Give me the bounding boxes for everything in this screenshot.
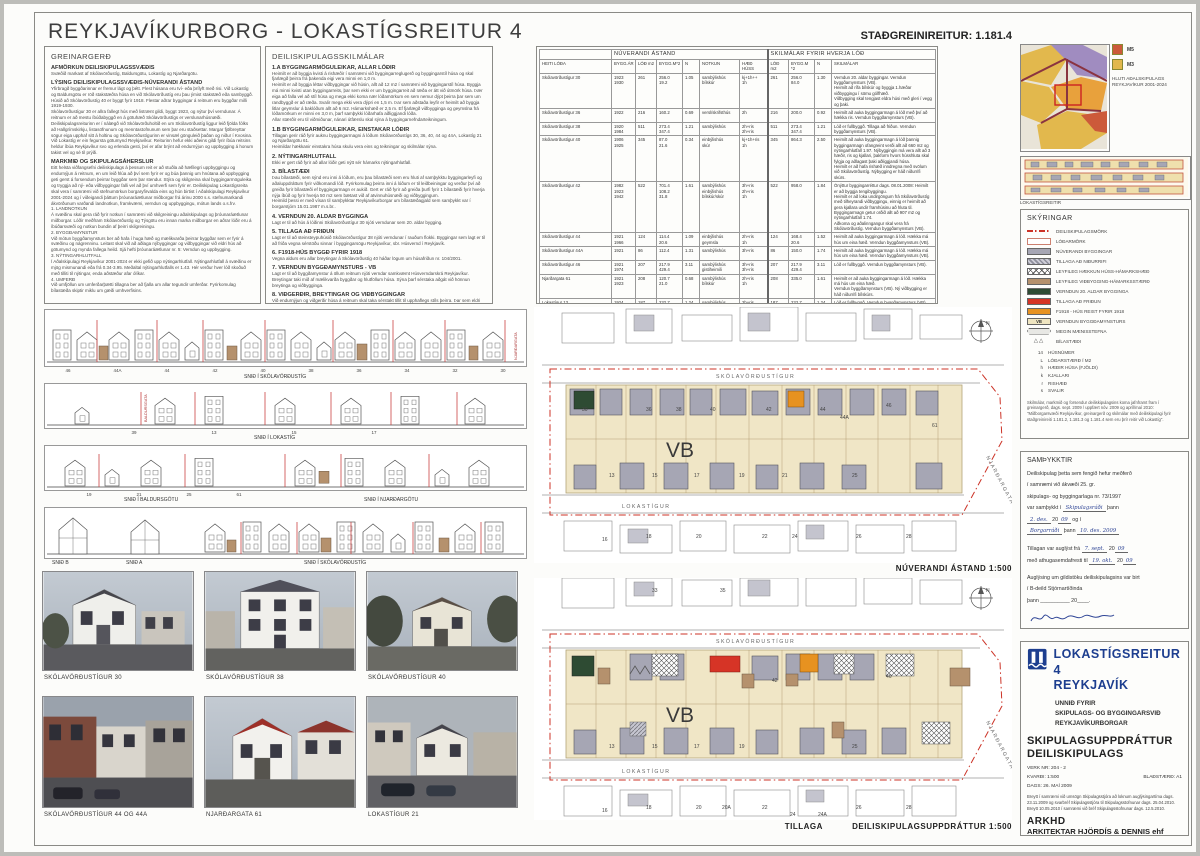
signature [1027, 609, 1117, 625]
cell-lod2: 216 [768, 108, 789, 122]
cell-notkun: sambýlishús einbýlishús bílskúr/skúr [700, 182, 740, 233]
house-number: 30 [500, 368, 505, 373]
col-heiti: HEITI LÓÐA [540, 59, 612, 73]
svg-text:42: 42 [772, 678, 778, 684]
schedule-rows: Skólavörðustígur 30 1923 1930 261 256.0 … [540, 73, 936, 304]
legend-key: r [1027, 381, 1043, 386]
cell-byggm2: 168.4 20.6 [789, 233, 815, 247]
text-section: AFMÖRKUN DEILISKIPULAGSSVÆÐIS Svæðið mar… [51, 65, 254, 77]
samthykktir-line: Auglýsing um gildistöku deiliskipulagsin… [1027, 573, 1182, 584]
cell-skilmalar: Heimilt að auka byggingarmagn á lóð. Hæk… [832, 233, 936, 247]
legend-label: TILLAGA AÐ NIÐURRIFI [1056, 259, 1107, 264]
legend-label: NÚVERANDI BYGGINGAR [1056, 249, 1112, 254]
section-caption: SNIÐ B [52, 560, 69, 566]
cell-byggar: 1920 1984 [612, 122, 636, 136]
legend-letter-item: 14 HÚSNÚMER [1027, 349, 1182, 357]
svg-text:15: 15 [652, 473, 658, 479]
photo-caption: LOKASTÍGUR 21 [368, 812, 419, 818]
cell-lod2: 261 [768, 73, 789, 108]
svg-text:20: 20 [696, 534, 702, 540]
legend-swatch-icon [1027, 248, 1051, 255]
text: þann [1064, 528, 1076, 534]
reykjavik-arms-icon [1027, 647, 1047, 675]
svg-text:24: 24 [792, 534, 798, 540]
legend-label: F1918 - HÚS REIST FYRIR 1918 [1056, 309, 1124, 314]
legend-swatch-icon [1027, 268, 1051, 275]
site-plan-proposal: SKÓLAVÖRÐUSTÍGUR LOKASTÍGUR NJARÐARGATA … [534, 578, 1012, 820]
table-row: Skólavörðustígur 44A 1921 86 112.4 1.31 … [540, 247, 936, 261]
cell-byggm2: 150.0 [789, 247, 815, 261]
elevation-drawing: NJARÐARGATA [45, 310, 526, 366]
greinargerd-title: GREINARGERÐ [51, 52, 254, 61]
legend-letter-item: L LÓÐARSTÆRÐ Í M2 [1027, 357, 1182, 365]
house-number: 34 [404, 368, 409, 373]
cell-n2: 1.61 [815, 274, 832, 298]
elevation-drawing [45, 446, 526, 490]
table-row: Skólavörðustígur 46 1921 1974 207 217.9 … [540, 260, 936, 274]
legend-key: s [1027, 388, 1043, 393]
cell-skilmalar: Heimilt að auka byggingarmagn á lóð með … [832, 108, 936, 122]
map-key-panel: M5 M3 HLUTI AÐALSKIPULAGS REYKJAVÍKUR 20… [1112, 44, 1189, 150]
legend-label: DEILISKIPULAGSMÖRK [1056, 229, 1107, 234]
house-number: 42 [212, 368, 217, 373]
elevation-caption: SNIÐ Í BALDURSGÖTU [124, 497, 178, 503]
svg-text:16: 16 [602, 537, 608, 543]
north-label: N [986, 321, 990, 327]
legend-swatch-icon [1027, 308, 1051, 315]
cell-byggm: 217.9 429.4 [657, 260, 683, 274]
elevation-caption: SNIÐ Í NJARÐARGÖTU [364, 497, 418, 503]
titleblock-dags: DAGS: 26. MAÍ 2009 [1027, 783, 1182, 792]
legend-letter-item: k KJALLARI [1027, 372, 1182, 380]
cell-skilmalar: Lóð er fullbyggð. Tillaga að friðun. Ver… [832, 122, 936, 136]
col-haed: HÆÐ HÚSS [740, 59, 768, 73]
svg-text:44: 44 [820, 407, 826, 413]
col-byggar: BYGG.ÁR [612, 59, 636, 73]
house-number: 17 [371, 430, 376, 435]
text: var samþykkt í [1027, 505, 1061, 511]
cell-lod: 345 [636, 136, 657, 182]
legend-label: VERNDUN BYGGÐAMYNSTURS [1056, 319, 1125, 324]
photo-caption: SKÓLAVÖRÐUSTÍGUR 44 OG 44A [44, 812, 147, 818]
legend-item: MEGIN MÆNISSTEFNA [1027, 326, 1182, 336]
elevation-caption: SNIÐ Í SKÓLAVÖRÐUSTÍG [244, 374, 306, 380]
legend-items: DEILISKIPULAGSMÖRK LÓÐARMÖRK NÚVERANDI B… [1027, 226, 1182, 346]
handwritten-entry: 09 [1115, 546, 1128, 553]
legend-item: TILLAGA AÐ NIÐURRIFI [1027, 256, 1182, 266]
group-skilmalar: SKILMÁLAR FYRIR HVERJA LÓÐ [768, 50, 936, 60]
text-section: LÝSING DEILISKIPULAGSSVÆÐIS-NÚVERANDI ÁS… [51, 80, 254, 156]
house-number: 38 [308, 368, 313, 373]
section-body: Við endurnýjun og viðgerðir húsa á reitn… [272, 298, 486, 304]
svg-text:28: 28 [906, 805, 912, 811]
legend-swatch-icon [1027, 258, 1051, 265]
elevation-strip-baldursgata [44, 445, 527, 491]
house-number: 36 [356, 368, 361, 373]
titleblock-panel: LOKASTÍGSREITUR 4 REYKJAVÍK UNNIÐ FYRIR … [1020, 641, 1189, 836]
cell-lod: 207 [636, 260, 657, 274]
cell-skilmalar: Verndun 20. aldar byggingar. Verndun byg… [832, 73, 936, 108]
cell-lod2: 511 [768, 122, 789, 136]
cell-byggm2: 232.7 [789, 299, 815, 305]
cell-byggar: 1921 [612, 247, 636, 261]
legend-label: LÓÐARMÖRK [1056, 239, 1086, 244]
svg-text:20A: 20A [722, 805, 732, 811]
cell-heiti: Skólavörðustígur 40 [540, 136, 612, 182]
legend-swatch-icon [1027, 278, 1051, 285]
section-body: Lagt er til að steinsteypuhúsið Skólavör… [272, 235, 486, 247]
skilmalar-sections: 1.A BYGGINGARMÖGULEIKAR, ALLAR LÓÐIR Hei… [272, 65, 486, 305]
titleblock-for: UNNIÐ FYRIR [1055, 699, 1182, 709]
cell-n2: 1.24 [815, 299, 832, 305]
svg-text:44A: 44A [840, 415, 850, 421]
titleblock-project: LOKASTÍGSREITUR 4 [1053, 647, 1182, 678]
svg-text:17: 17 [694, 744, 700, 750]
north-label: N [986, 588, 990, 594]
handwritten-entry: 09 [1123, 558, 1136, 565]
photo-caption: SKÓLAVÖRÐUSTÍGUR 30 [44, 675, 122, 681]
cell-heiti: Skólavörðustígur 30 [540, 73, 612, 108]
legend-letter-item: h HÆÐIR HÚSA (FJÖLDI) [1027, 364, 1182, 372]
table-row: Lokastígur 13 1924 187 232.7 1.24 sambýl… [540, 299, 936, 305]
cell-notkun: sambýlishús bílskúr [700, 73, 740, 108]
cell-byggm2: 273.4 347.4 [789, 122, 815, 136]
house-number: 25 [186, 492, 191, 497]
svg-text:22: 22 [762, 805, 768, 811]
cell-n2: 2.50 [815, 136, 832, 182]
table-row: Skólavörðustígur 38 1920 1984 511 273.4 … [540, 122, 936, 136]
text-section: 6. F1918-HÚS BYGGÐ FYRIR 1918 Vegna aldu… [272, 250, 486, 262]
legend-swatch-icon [1027, 238, 1051, 245]
section-body: Vegna aldurs eru allar breytingar á Skól… [272, 256, 486, 262]
text-section: 5. TILLAGA AÐ FRIÐUN Lagt er til að stei… [272, 229, 486, 247]
handwritten-entry: Skipulagsráði [1063, 505, 1106, 512]
cell-heiti: Skólavörðustígur 44 [540, 233, 612, 247]
cell-byggm: 232.7 [657, 299, 683, 305]
titleblock-city: REYKJAVÍK [1053, 678, 1182, 694]
photo-skolavordustigur-44-44a [42, 696, 194, 808]
handwritten-entry: 09 [1058, 517, 1071, 524]
stadgreinireitur-ref: STAÐGREINIREITUR: 1.181.4 [704, 30, 1012, 42]
photo-njardargata-61 [204, 696, 356, 808]
legend-item: △△ BÍLASTÆÐI [1027, 336, 1182, 346]
cell-skilmalar: Heimilt að auka byggingarmagn á lóð. Hæk… [832, 247, 936, 261]
photo-skolavordustigur-30 [42, 571, 194, 671]
cell-byggar: 1906 1925 [612, 136, 636, 182]
cell-notkun: sambýlishús bílskúr [700, 274, 740, 298]
site-plan-existing: SKÓLAVÖRÐUSTÍGUR LOKASTÍGUR NJARÐARGATA … [534, 307, 1012, 563]
text: og í [1072, 517, 1081, 523]
cell-byggar: 1982 1923 1942 [612, 182, 636, 233]
handwritten-entry: 19. okt. [1089, 558, 1115, 565]
cell-byggm: 256.0 19.2 [657, 73, 683, 108]
adalskipulag-caption: HLUTI AÐALSKIPULAGS REYKJAVÍKUR 2001-202… [1112, 76, 1189, 88]
legend-key: L [1027, 358, 1043, 363]
table-row: Skólavörðustígur 30 1923 1930 261 256.0 … [540, 73, 936, 108]
titleblock-firm2: ARKITEKTAR HJÖRDÍS & DENNIS ehf [1027, 827, 1182, 836]
site-plan-existing-drawing: SKÓLAVÖRÐUSTÍGUR LOKASTÍGUR NJARÐARGATA … [534, 307, 1012, 563]
street-label-top: SKÓLAVÖRÐUSTÍGUR [716, 638, 795, 645]
cell-byggm: 112.4 [657, 247, 683, 261]
svg-text:42: 42 [766, 407, 772, 413]
text: 20 [1117, 558, 1123, 564]
table-row: Njarðargata 61 1921 1923 208 120.7 21.0 … [540, 274, 936, 298]
col-n2: N [815, 59, 832, 73]
handwritten-entry: 10. des. 2009 [1077, 528, 1119, 535]
house-number: 46 [65, 368, 70, 373]
samthykktir-title: SAMÞYKKTIR [1027, 457, 1182, 464]
samthykktir-panel: SAMÞYKKTIR Deiliskipulag þetta sem fengi… [1020, 451, 1189, 629]
cell-lod2: 187 [768, 299, 789, 305]
cell-lod: 216 [636, 108, 657, 122]
svg-text:15: 15 [652, 744, 658, 750]
legend-label: RISHÆÐ [1048, 381, 1067, 386]
legend-item: LÓÐARMÖRK [1027, 236, 1182, 246]
col-notkun: NOTKUN [700, 59, 740, 73]
cell-byggm2: 335.0 [789, 274, 815, 298]
text: þann [1107, 505, 1119, 511]
text-section: 1.B BYGGINGARMÖGULEIKAR, EINSTAKAR LÓÐIR… [272, 127, 486, 151]
cell-skilmalar: Heimilt að auka byggingarmagn á lóð þann… [832, 136, 936, 182]
col-lod2: LÓÐ m2 [768, 59, 789, 73]
svg-text:13: 13 [609, 744, 615, 750]
titleblock-for: REYKJAVÍKURBORGAR [1055, 719, 1182, 729]
cell-heiti: Skólavörðustígur 42 [540, 182, 612, 233]
cell-n: 0.69 [683, 108, 700, 122]
table-row: Skólavörðustígur 42 1982 1923 1942 522 7… [540, 182, 936, 233]
section-body: Ekki er gert ráð fyrir að allar lóðir ge… [272, 160, 486, 166]
svg-text:24: 24 [790, 812, 796, 818]
svg-text:26: 26 [856, 534, 862, 540]
cell-n: 0.68 [683, 274, 700, 298]
legend-panel: SKÝRINGAR DEILISKIPULAGSMÖRK LÓÐARMÖRK N… [1020, 209, 1189, 439]
cell-lod2: 522 [768, 182, 789, 233]
samthykktir-line: var samþykkt í Skipulagsráði þann [1027, 503, 1182, 514]
cell-heiti: Skólavörðustígur 36 [540, 108, 612, 122]
m5-label: M5 [1127, 47, 1134, 53]
cell-n: 1.05 [683, 73, 700, 108]
skilmalar-title: DEILISKIPULAGSSKILMÁLAR [272, 52, 486, 61]
photo-caption: SKÓLAVÖRÐUSTÍGUR 38 [206, 675, 284, 681]
svg-text:61: 61 [932, 423, 938, 429]
section-body: Eitt helsta viðfangsefni deiliskipulags … [51, 165, 254, 294]
house-number: 44A [113, 368, 121, 373]
cell-byggm: 273.4 347.4 [657, 122, 683, 136]
legend-item: F1918 - HÚS REIST FYRIR 1918 [1027, 306, 1182, 316]
text-section: 1.A BYGGINGARMÖGULEIKAR, ALLAR LÓÐIR Hei… [272, 65, 486, 124]
legend-item: NÚVERANDI BYGGINGAR [1027, 246, 1182, 256]
legend-key: h [1027, 365, 1043, 370]
cell-haed: 3h+ris [740, 247, 768, 261]
cell-byggar: 1923 1930 [612, 73, 636, 108]
photo-skolavordustigur-40 [366, 571, 518, 671]
adalskipulag-map [1020, 44, 1110, 152]
legend-label: MEGIN MÆNISSTEFNA [1056, 329, 1107, 334]
elevation-numbers: 4644A4442403836343230 [44, 368, 527, 373]
cell-byggar: 1921 1974 [612, 260, 636, 274]
cell-lod: 511 [636, 122, 657, 136]
samthykktir-line: Tillagan var auglýst frá 7. sept. 2009 [1027, 544, 1182, 555]
legend-label: HÆÐIR HÚSA (FJÖLDI) [1048, 365, 1098, 370]
cell-lod: 261 [636, 73, 657, 108]
m3-label: M3 [1127, 62, 1134, 68]
svg-text:22: 22 [762, 534, 768, 540]
svg-text:33: 33 [652, 588, 658, 594]
text: Tillagan var auglýst frá [1027, 546, 1080, 552]
cell-n: 1.61 [683, 182, 700, 233]
cell-byggm2: 200.0 [789, 108, 815, 122]
cell-haed: 2h+ris [740, 299, 768, 305]
house-number: 13 [211, 430, 216, 435]
legend-swatch-icon [1027, 328, 1051, 335]
cell-n2: 3.11 [815, 260, 832, 274]
handwritten-entry: 7. sept. [1082, 546, 1108, 553]
cell-n: 1.24 [683, 299, 700, 305]
lokastigsreitir-map-art [1021, 157, 1188, 197]
col-skilmalar: SKILMÁLAR [832, 59, 936, 73]
titleblock-verknr: VERK NR: 204 - 2 [1027, 765, 1066, 774]
legend-label: KJALLARI [1048, 373, 1069, 378]
cell-heiti: Njarðargata 61 [540, 274, 612, 298]
col-byggm2: BYGG.M *2 [789, 59, 815, 73]
vb-zone-label: VB [666, 704, 694, 727]
samthykktir-line: 2. des. 2009 og í [1027, 515, 1182, 526]
svg-text:16: 16 [602, 808, 608, 814]
svg-text:28: 28 [906, 534, 912, 540]
photo-lokastigur-21 [366, 696, 518, 808]
greinargerd-panel: GREINARGERÐ AFMÖRKUN DEILISKIPULAGSSVÆÐI… [44, 46, 261, 304]
legend-item: VERNDUN 20. ALDAR BYGGINGA [1027, 286, 1182, 296]
titleblock-doctype: DEILISKIPULAGS [1027, 748, 1182, 761]
svg-text:36: 36 [646, 407, 652, 413]
cell-heiti: Lokastígur 13 [540, 299, 612, 305]
cell-byggm2: 958.0 [789, 182, 815, 233]
cell-heiti: Skólavörðustígur 46 [540, 260, 612, 274]
photo-caption: SKÓLAVÖRÐUSTÍGUR 40 [368, 675, 446, 681]
legend-label: LEYFILEG HÆKKUN HÚSS-HÁMARKSHÆÐ [1056, 269, 1149, 274]
cell-n2: 1.74 [815, 247, 832, 261]
legend-swatch-icon [1027, 298, 1051, 305]
elevation-drawing: BALDURSGATA [45, 384, 526, 428]
cell-heiti: Skólavörðustígur 44A [540, 247, 612, 261]
street-label-baldursgata: BALDURSGATA [144, 394, 148, 422]
plan2-title: TILLAGA DEILISKIPULAGSUPPDRÁTTUR 1:500 [704, 822, 1012, 831]
lokastigsreitir-caption: LOKASTÍGSREITIR [1020, 200, 1061, 206]
col-byggm: BYGG.M*2 [657, 59, 683, 73]
street-label-top: SKÓLAVÖRÐUSTÍGUR [716, 373, 795, 380]
cell-lod: 208 [636, 274, 657, 298]
cell-haed: 3h+ris 3h+ris [740, 260, 768, 274]
section-body: Lagt er til að byggðamynstur á öllum rei… [272, 271, 486, 289]
text-section: MARKMIÐ OG SKIPULAGSÁHERSLUR Eitt helsta… [51, 159, 254, 294]
cell-haed: 2h [740, 108, 768, 122]
legend-label: VERNDUN 20. ALDAR BYGGINGA [1056, 289, 1129, 294]
skilmalar-panel: DEILISKIPULAGSSKILMÁLAR 1.A BYGGINGARMÖG… [265, 46, 493, 304]
cell-skilmalar: Lóð er fullbyggð. Verndun byggðamynsturs… [832, 260, 936, 274]
svg-text:18: 18 [646, 534, 652, 540]
svg-text:18: 18 [646, 805, 652, 811]
legend-item: LEYFILEG HÆKKUN HÚSS-HÁMARKSHÆÐ [1027, 266, 1182, 276]
empty-header [540, 50, 612, 60]
legend-item: LEYFILEG VIÐBYGGING-HÁMARKSSTÆRÐ [1027, 276, 1182, 286]
elevation-caption: SNIÐ Í LOKASTÍG [254, 435, 295, 441]
section-body: Tillagan gerir ráð fyrir auknu byggingar… [272, 133, 486, 151]
cell-lod2: 86 [768, 247, 789, 261]
text: 20 [1109, 546, 1115, 552]
section-body: Heimilt er að byggja kvisti á rishæðir í… [272, 71, 486, 124]
cell-n: 1.21 [683, 122, 700, 136]
samthykktir-line: þann __________ 20____. [1027, 596, 1182, 607]
cell-byggm: 120.7 21.0 [657, 274, 683, 298]
cell-byggm2: 217.9 429.4 [789, 260, 815, 274]
lokastigsreitir-map [1020, 156, 1191, 200]
svg-text:20: 20 [696, 805, 702, 811]
plan-sheet: REYKJAVÍKURBORG - LOKASTÍGSREITUR 4 STAÐ… [4, 4, 1196, 852]
cell-lod2: 124 [768, 233, 789, 247]
legend-label: LEYFILEG VIÐBYGGING-HÁMARKSSTÆRÐ [1056, 279, 1150, 284]
page-title: REYKJAVÍKURBORG - LOKASTÍGSREITUR 4 [48, 20, 523, 44]
samthykktir-line: í B-deild Stjórnartíðinda [1027, 584, 1182, 595]
site-plan-proposal-drawing: SKÓLAVÖRÐUSTÍGUR LOKASTÍGUR NJARÐARGATA … [534, 578, 1012, 820]
cell-skilmalar: Ónýttur byggingarréttur dags. 08.01.2008… [832, 182, 936, 233]
house-number: 39 [131, 430, 136, 435]
adalskipulag-map-art [1021, 45, 1107, 149]
house-number: 61 [236, 492, 241, 497]
cell-notkun: einbýlishús skúr [700, 136, 740, 182]
legend-label: BÍLASTÆÐI [1056, 339, 1081, 344]
cell-n2: 0.92 [815, 108, 832, 122]
svg-text:19: 19 [739, 744, 745, 750]
titleblock-for: SKIPULAGS- OG BYGGINGARSVIÐ [1055, 709, 1182, 719]
col-lod: LÓÐ m2 [636, 59, 657, 73]
text: með athugasemdafresti til [1027, 558, 1088, 564]
samthykktir-line: Borgarráði þann 10. des. 2009 [1027, 526, 1182, 537]
cell-notkun: sambýlishús gistiheimili [700, 260, 740, 274]
cell-byggm: 160.2 [657, 108, 683, 122]
legend-swatch-icon [1027, 230, 1051, 232]
svg-text:25: 25 [852, 744, 858, 750]
cell-lod: 187 [636, 299, 657, 305]
legend-swatch-icon: △△ [1027, 338, 1051, 345]
photo-skolavordustigur-38 [204, 571, 356, 671]
cell-lod: 86 [636, 247, 657, 261]
titleblock-revision-note: Breytt í samræmi við umsögn Skipulagsstj… [1027, 794, 1182, 811]
text-section: 3. BÍLASTÆÐI Þau bílastæði, sem sýnd eru… [272, 169, 486, 210]
cell-haed: 3h+ris 2h+ris 1h [740, 182, 768, 233]
text-section: 4. VERNDUN 20. ALDAR BYGGINGA Lagt er ti… [272, 214, 486, 226]
legend-label: TILLAGA AÐ FRIÐUN [1056, 299, 1101, 304]
col-n: N [683, 59, 700, 73]
titleblock-doctype: SKIPULAGSUPPDRÁTTUR [1027, 735, 1182, 748]
section-body: Svæðið markast af Skólavörðustíg, Baldur… [51, 71, 254, 77]
samthykktir-line: skipulags- og byggingarlaga nr. 73/1997 [1027, 492, 1182, 503]
samthykktir-line: í samræmi við ákvæði 25. gr. [1027, 480, 1182, 491]
cell-n2: 1.52 [815, 233, 832, 247]
cell-byggm: 114.4 20.6 [657, 233, 683, 247]
handwritten-entry: 2. des. [1027, 517, 1051, 524]
samthykktir-line: með athugasemdafresti til 19. okt. 2009 [1027, 556, 1182, 567]
cell-haed: 2h+ris 1h [740, 274, 768, 298]
cell-skilmalar: Heimilt er að auka byggingarmagn á lóð. … [832, 274, 936, 298]
cell-byggar: 1921 1966 [612, 233, 636, 247]
cell-notkun: sambýlishús [700, 247, 740, 261]
cell-lod: 522 [636, 182, 657, 233]
house-number: 44 [164, 368, 169, 373]
legend-item: TILLAGA AÐ FRIÐUN [1027, 296, 1182, 306]
svg-text:30: 30 [582, 407, 588, 413]
svg-text:17: 17 [694, 473, 700, 479]
titleblock-kvardi: KVARÐI: 1:500 [1027, 774, 1059, 783]
